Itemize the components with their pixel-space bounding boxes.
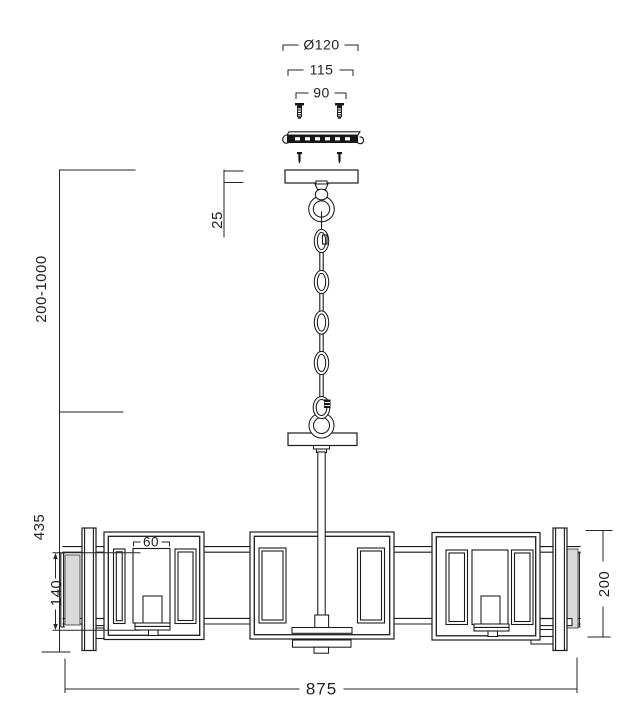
dimension-screw-spacing: 90	[296, 85, 346, 101]
body-suspension	[288, 397, 357, 453]
dimension-canopy-height: 25	[209, 170, 243, 237]
stem-hub	[315, 615, 329, 628]
dimension-frame-height: 200	[586, 531, 613, 638]
dim-label-frame-height: 200	[596, 571, 613, 598]
mounting-bracket	[283, 132, 364, 144]
technical-drawing: Ø120 115 90	[0, 0, 643, 716]
dimension-canopy-diameter: Ø120	[283, 37, 358, 53]
dimension-suspension-range: 200-1000	[33, 170, 135, 412]
dim-label-bracket-width: 115	[310, 62, 334, 78]
canopy-assembly	[285, 170, 358, 231]
dim-label-canopy-height: 25	[209, 211, 226, 229]
dim-label-total-width: 875	[306, 680, 337, 699]
body-loop-inner	[314, 418, 330, 434]
right-candle	[481, 596, 500, 624]
left-candle	[143, 596, 162, 623]
chandelier-dimension-drawing: Ø120 115 90	[0, 0, 643, 716]
mounting-pin-right	[337, 152, 342, 164]
mounting-screw-right	[335, 103, 344, 119]
carabiner-nut	[324, 400, 331, 409]
bottom-knob	[314, 647, 329, 653]
dim-label-shade-height: 140	[48, 580, 65, 607]
canopy-finial	[315, 189, 327, 200]
mounting-screw-left	[295, 103, 304, 119]
dim-label-screw-spacing: 90	[313, 85, 330, 101]
dim-label-body-drop: 435	[31, 514, 48, 541]
left-edge-glass	[65, 555, 80, 625]
right-frame-cage	[432, 533, 540, 641]
bottom-disc	[293, 640, 352, 647]
bottom-plate	[292, 628, 352, 634]
dimension-total-width: 875	[65, 658, 577, 699]
mounting-pin-left	[297, 152, 302, 164]
right-edge-glass	[566, 549, 578, 628]
dim-label-canopy-diameter: Ø120	[303, 37, 339, 53]
dim-label-suspension-range: 200-1000	[33, 255, 50, 322]
dim-label-candle-width: 60	[143, 535, 159, 550]
dimension-bracket-width: 115	[288, 62, 353, 78]
chain	[314, 229, 328, 396]
center-stem	[318, 452, 325, 616]
